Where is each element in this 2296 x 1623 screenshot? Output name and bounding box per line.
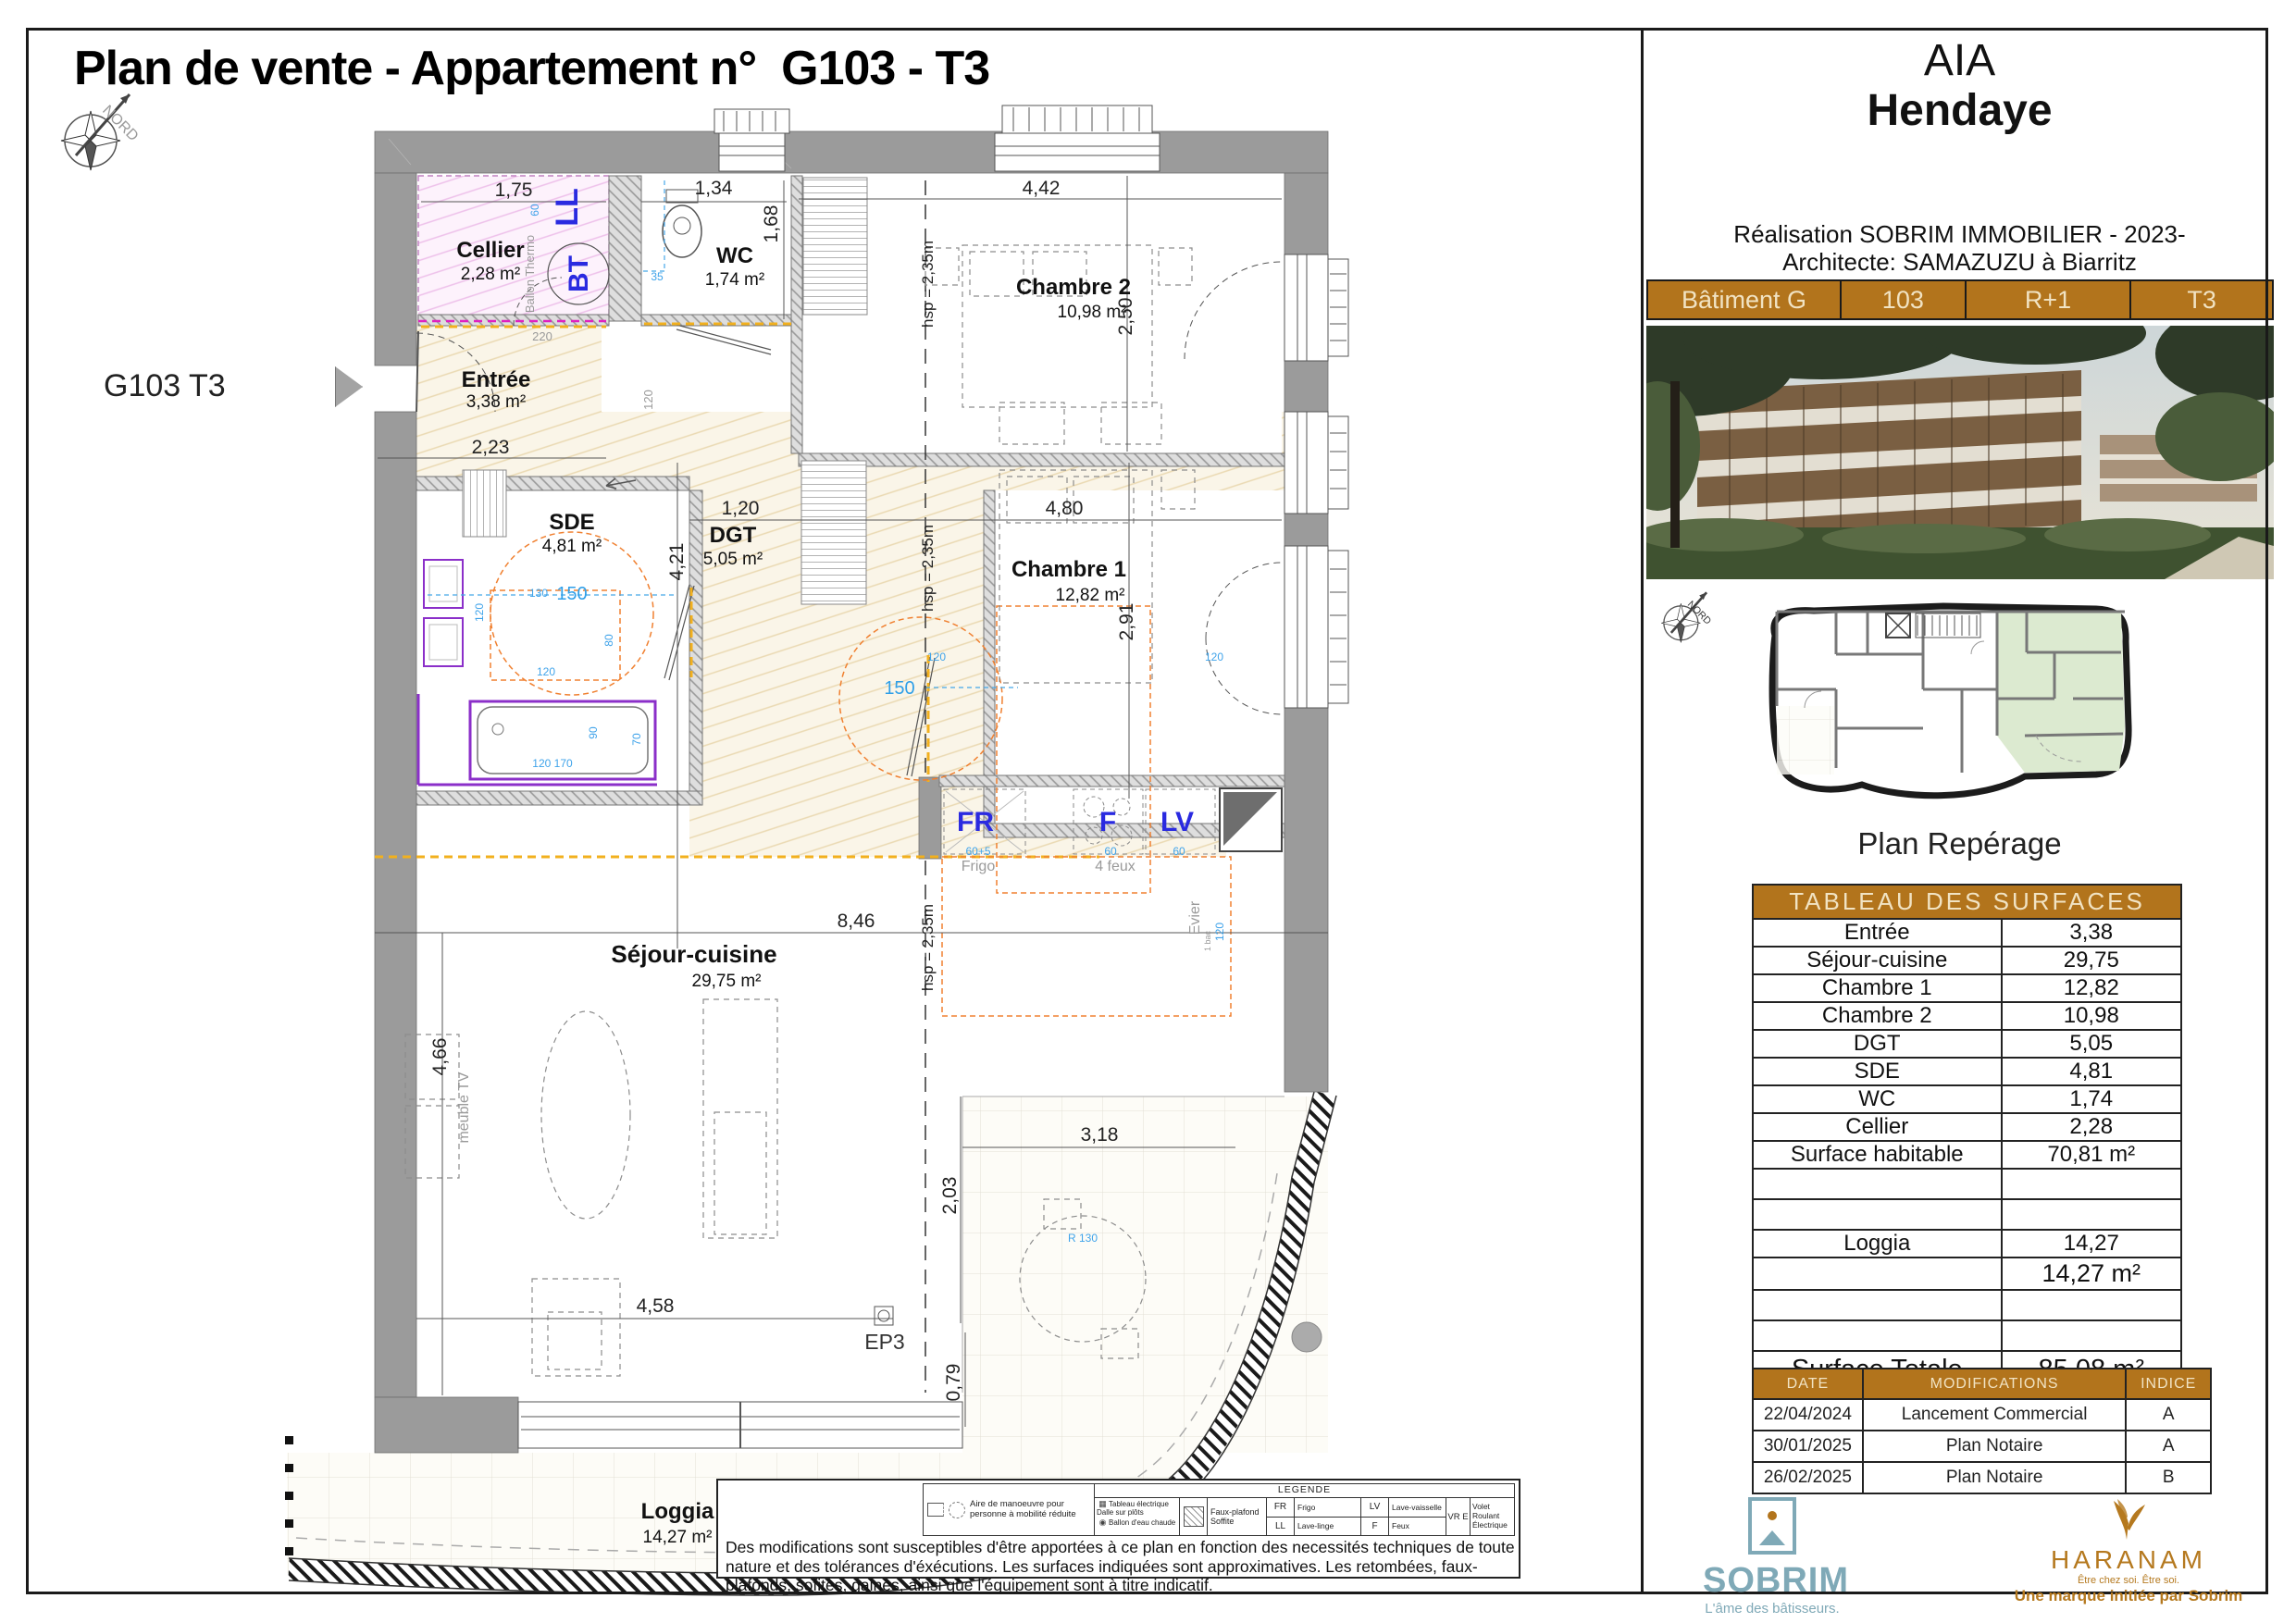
svg-text:1,74 m²: 1,74 m² [705, 270, 764, 290]
svg-text:2,23: 2,23 [472, 437, 510, 458]
building-photo [1646, 326, 2274, 579]
sobrim-logo: SOBRIM L'âme des bâtisseurs. [1703, 1497, 1842, 1617]
feux-label: 4 feux [1095, 859, 1136, 874]
pmr-square-icon [927, 1503, 944, 1517]
evier-label: Evier [1187, 900, 1203, 935]
entry-pointer-icon [335, 366, 363, 407]
svg-text:120: 120 [641, 390, 655, 410]
plan-reperage-label: Plan Repérage [1644, 826, 2276, 861]
svg-text:hsp = 2,35m: hsp = 2,35m [919, 525, 937, 612]
revision-row: 26/02/2025Plan NotaireB [1753, 1462, 2211, 1493]
frigo-label: Frigo [962, 859, 996, 874]
haranam-tagline: Être chez soi. Être soi. [2008, 1575, 2249, 1586]
bt-label: BT [564, 255, 594, 292]
legend-fp-cell: Faux-plafondSoffite [1208, 1498, 1267, 1535]
floor-plan: Cellier 2,28 m² LL BT Ballon Thermo 1,75… [370, 93, 1365, 1592]
revision-table: DATE MODIFICATIONS INDICE 22/04/2024Lanc… [1752, 1368, 2212, 1494]
svg-text:4,21: 4,21 [666, 543, 688, 581]
room-chambre1: Chambre 1 [1011, 557, 1126, 582]
svg-text:2,91: 2,91 [1116, 603, 1137, 641]
svg-text:90: 90 [587, 726, 600, 739]
svg-text:70: 70 [630, 733, 643, 746]
svg-text:4,58: 4,58 [637, 1295, 675, 1317]
f-label: F [1099, 807, 1116, 837]
legend-hatch-cell [1180, 1498, 1208, 1535]
haranam-bird-icon [2108, 1492, 2149, 1540]
room-entree: Entrée [462, 367, 531, 392]
floors [287, 176, 1328, 1573]
lv-label: LV [1160, 807, 1194, 837]
svg-text:130: 130 [529, 587, 548, 600]
svg-text:2,28 m²: 2,28 m² [461, 265, 520, 284]
svg-text:2,50: 2,50 [1115, 298, 1136, 336]
svg-text:1,20: 1,20 [722, 498, 760, 519]
sobrim-tagline: L'âme des bâtisseurs. [1703, 1601, 1842, 1617]
svg-text:0,79: 0,79 [943, 1364, 964, 1402]
svg-text:4,81 m²: 4,81 m² [542, 537, 602, 556]
project-city: Hendaye [1644, 85, 2276, 136]
room-cellier: Cellier [456, 238, 524, 263]
svg-text:120: 120 [1213, 923, 1226, 941]
panel-divider [1641, 28, 1644, 1594]
svg-text:150: 150 [556, 584, 587, 604]
building-bar-etage: R+1 [1967, 281, 2132, 318]
room-dgt: DGT [710, 523, 757, 548]
svg-text:4,66: 4,66 [429, 1038, 451, 1076]
haranam-name: HARANAM [2008, 1545, 2249, 1575]
plan-reperage-map [1749, 597, 2147, 824]
legend-box: Aire de manoeuvre pour personne à mobili… [716, 1479, 1520, 1579]
svg-text:8,46: 8,46 [838, 911, 875, 932]
svg-text:4,80: 4,80 [1046, 498, 1084, 519]
compass-icon: NORD [48, 80, 141, 181]
svg-text:29,75 m²: 29,75 m² [692, 972, 762, 991]
svg-text:1,34: 1,34 [695, 178, 733, 199]
svg-text:2,03: 2,03 [939, 1177, 961, 1215]
svg-text:60: 60 [1173, 845, 1185, 858]
svg-text:12,82 m²: 12,82 m² [1056, 586, 1125, 605]
room-loggia: Loggia [641, 1499, 714, 1524]
tableau-electrique-icon: ▦ [1097, 1499, 1109, 1508]
haranam-subline: Une marque initiée par Sobrim [2008, 1587, 2249, 1605]
svg-text:1,75: 1,75 [495, 180, 533, 201]
meuble-tv-label: meuble TV [456, 1072, 472, 1143]
room-sejour: Séjour-cuisine [611, 940, 776, 968]
svg-text:3,18: 3,18 [1081, 1124, 1119, 1146]
realisation-line: Réalisation SOBRIM IMMOBILIER - 2023- [1644, 220, 2276, 249]
svg-text:5,05 m²: 5,05 m² [703, 550, 763, 569]
svg-text:120: 120 [927, 650, 946, 663]
svg-text:120: 120 [1205, 650, 1223, 663]
revision-row: 30/01/2025Plan NotaireA [1753, 1431, 2211, 1462]
surface-table: TABLEAU DES SURFACES Entrée3,38 Séjour-c… [1752, 884, 2182, 1390]
ll-label: LL [550, 188, 585, 227]
svg-text:3,38 m²: 3,38 m² [466, 392, 526, 412]
project-name: AIA [1644, 35, 2276, 86]
sobrim-logo-icon [1748, 1497, 1796, 1555]
legend-fr-ll-cell: FRFrigo LLLave-linge [1267, 1498, 1361, 1535]
legend-aire-cell: Aire de manoeuvre pour personne à mobili… [924, 1484, 1095, 1535]
faux-plafond-swatch-icon [1184, 1506, 1204, 1527]
ballon-thermo-label: Ballon Thermo [523, 235, 537, 313]
haranam-logo: HARANAM Être chez soi. Être soi. Une mar… [2008, 1492, 2249, 1605]
svg-text:14,27 m²: 14,27 m² [643, 1528, 713, 1547]
architecte-line: Architecte: SAMAZUZU à Biarritz [1644, 248, 2276, 277]
sobrim-name: SOBRIM [1703, 1561, 1842, 1601]
building-bar-batiment: Bâtiment G [1648, 281, 1842, 318]
svg-text:120: 120 [473, 603, 486, 622]
svg-text:hsp = 2,35m: hsp = 2,35m [919, 904, 937, 991]
svg-text:150: 150 [884, 678, 914, 699]
svg-text:220: 220 [532, 329, 552, 343]
svg-text:60: 60 [1104, 845, 1117, 858]
ballon-icon: ◉ [1097, 1518, 1109, 1527]
fr-label: FR [957, 807, 994, 837]
room-sde: SDE [549, 510, 594, 535]
highlighted-unit [1997, 612, 2125, 773]
building-bar-lot: 103 [1842, 281, 1967, 318]
svg-text:1,68: 1,68 [761, 205, 782, 243]
legend-lv-f-cell: LVLave-vaisselle FFeux [1361, 1498, 1446, 1535]
svg-text:4,42: 4,42 [1023, 178, 1061, 199]
disclaimer-text: Des modifications sont susceptibles d'êt… [726, 1538, 1515, 1595]
svg-text:35: 35 [651, 270, 664, 283]
pmr-circle-icon [949, 1502, 965, 1518]
mini-compass-icon: NORD [1653, 581, 1714, 651]
unit-label: G103 T3 [104, 368, 226, 404]
building-bar: Bâtiment G 103 R+1 T3 [1646, 279, 2274, 320]
surface-table-title: TABLEAU DES SURFACES [1753, 885, 2181, 919]
legend-title: LEGENDE [1095, 1484, 1514, 1498]
svg-text:R 130: R 130 [1068, 1232, 1098, 1245]
svg-text:120: 120 [537, 665, 555, 678]
legend-elec-cell: ▦Tableau électrique Dalle sur plôts ◉Bal… [1095, 1498, 1180, 1535]
svg-text:120 170: 120 170 [532, 757, 573, 770]
svg-text:60+5: 60+5 [965, 845, 990, 858]
room-chambre2: Chambre 2 [1016, 275, 1131, 300]
svg-text:80: 80 [602, 634, 615, 647]
svg-text:60: 60 [528, 204, 541, 217]
room-wc: WC [716, 243, 753, 268]
legend-table: Aire de manoeuvre pour personne à mobili… [923, 1483, 1515, 1536]
building-bar-type: T3 [2131, 281, 2272, 318]
hsp-label: hsp = 2,35m [919, 241, 937, 328]
ep3-label: EP3 [864, 1330, 904, 1354]
svg-text:1 bac: 1 bac [1203, 930, 1212, 951]
legend-vr-cell: VR EVolet Roulant Électrique [1446, 1498, 1514, 1535]
page-title: Plan de vente - Appartement n° G103 - T3 [74, 41, 989, 96]
revision-row: 22/04/2024Lancement CommercialA [1753, 1399, 2211, 1431]
